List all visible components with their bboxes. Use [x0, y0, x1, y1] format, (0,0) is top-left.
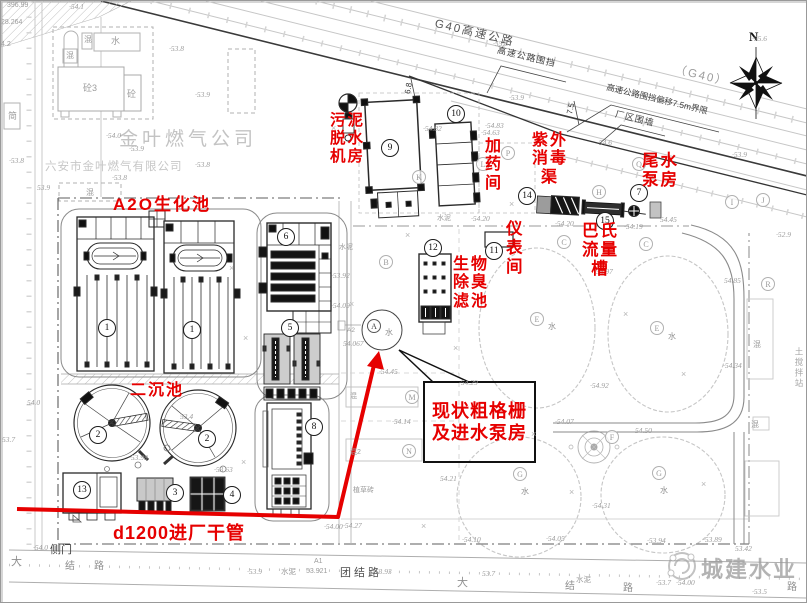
existing-intake-circle — [362, 310, 402, 350]
site-plan: G40高速公路 （G40） 高速公路围挡 高速公路围挡偏移7.5m界限 厂区围墙… — [0, 0, 807, 603]
plan-linework — [1, 1, 807, 603]
